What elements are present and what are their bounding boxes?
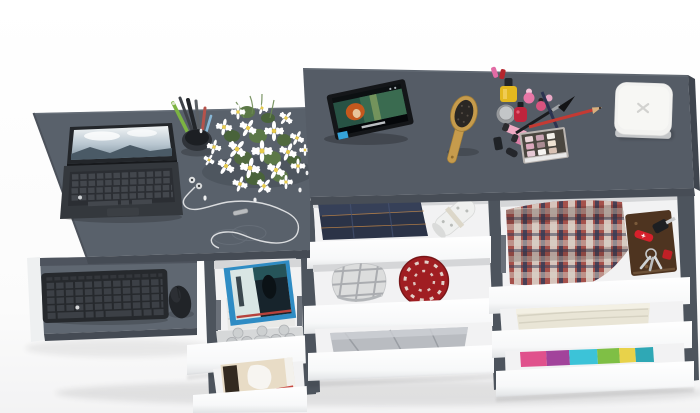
right-drawer-column xyxy=(489,192,699,402)
drawer-rail xyxy=(297,296,302,326)
cream-jar xyxy=(497,105,516,124)
magazine-stack xyxy=(224,260,297,330)
middle-drawer-column xyxy=(300,193,506,394)
wireless-keyboard xyxy=(41,269,169,323)
white-box xyxy=(614,82,674,140)
laptop xyxy=(60,123,183,223)
vanity-unit xyxy=(303,66,700,205)
eyeshadow-palette xyxy=(519,127,569,164)
scene-desk-render: Photorealistic 3D render, top view of a … xyxy=(0,0,700,413)
drawer-rail xyxy=(501,235,506,273)
drawer-rail xyxy=(216,300,221,330)
folded-jeans xyxy=(318,199,428,240)
floor-shadow-left xyxy=(25,339,215,357)
red-knit-hat xyxy=(399,256,449,306)
keyboard-tray xyxy=(27,255,197,342)
